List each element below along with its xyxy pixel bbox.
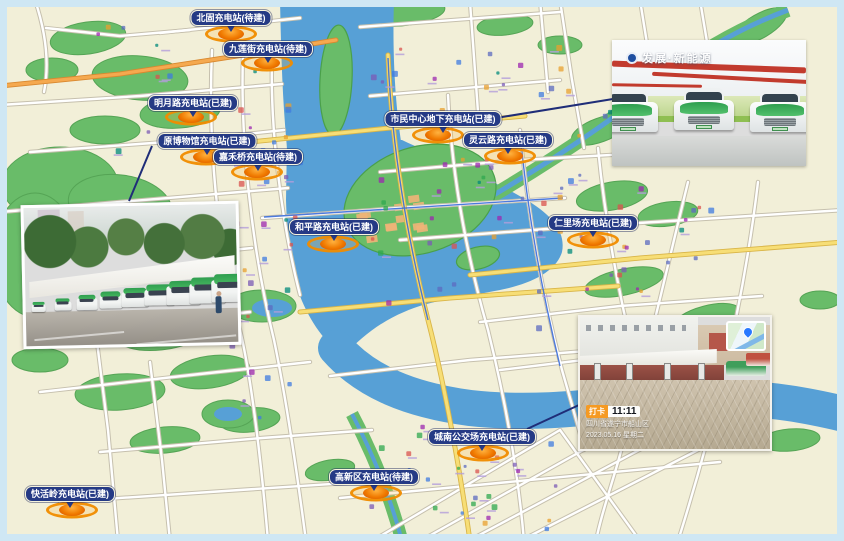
charging-station-marker[interactable] [165,109,217,126]
charging-station-marker[interactable] [567,232,619,249]
taxi-row [24,204,239,346]
photo-depot-charging-lot: 打卡 11:11 四川省遂宁市船山区 2023.05.16 星期二 [578,315,772,451]
station-label[interactable]: 原博物馆充电站(已建) [158,133,257,149]
photo-underground-garage: 发展·新能源 [612,40,806,166]
charging-station-marker[interactable] [457,445,509,462]
frame-border [0,0,844,7]
taxi [674,88,734,134]
charging-pile [594,363,601,380]
taxi [76,298,97,310]
taxi-windshield [34,304,44,307]
station-label[interactable]: 仁里场充电站(已建) [548,215,638,231]
charging-station-marker[interactable] [231,164,283,181]
charging-pile [664,363,671,380]
taxi [612,90,658,136]
taxi-windshield [218,281,242,288]
station-label[interactable]: 高新区充电站(待建) [329,469,419,485]
frame-border [837,0,844,541]
station-label[interactable]: 灵云路充电站(已建) [463,132,553,148]
frame-border [0,0,7,541]
charging-station-marker[interactable] [241,55,293,72]
location-pin-icon [741,325,755,339]
checkin-address: 四川省遂宁市船山区 [586,420,649,429]
charging-station-marker[interactable] [205,26,257,43]
charging-pile [698,363,705,380]
taxi [750,90,806,136]
charging-station-marker[interactable] [307,236,359,253]
photo-canopy-charging-station [21,201,242,350]
red-bus [746,353,772,366]
station-label[interactable]: 九莲街充电站(待建) [223,41,313,57]
building-windows [586,325,686,331]
station-label[interactable]: 明月路充电站(已建) [148,95,238,111]
mini-map-overlay [726,321,766,351]
garage-floor [612,136,806,166]
charging-station-marker[interactable] [350,485,402,502]
station-label[interactable]: 快活岭充电站(已建) [25,486,115,502]
checkin-time: 11:11 [608,406,640,417]
station-label[interactable]: 城南公交场充电站(已建) [428,429,536,445]
station-label[interactable]: 北固充电站(待建) [191,10,272,26]
station-label[interactable]: 和平路充电站(已建) [289,219,379,235]
taxi-windshield [103,296,119,300]
charging-station-marker[interactable] [46,502,98,519]
slogan-text: 发展·新能源 [642,50,713,66]
attendant-person [215,296,221,313]
checkin-badge: 打卡 [586,405,608,418]
charging-station-marker[interactable] [412,127,464,144]
taxi-windshield [80,299,94,303]
taxi-windshield [57,302,69,305]
charging-pile [626,363,633,380]
frame-border [0,534,844,541]
charging-station-marker[interactable] [484,148,536,165]
wall-slogan: 发展·新能源 [626,50,713,66]
taxi [99,295,123,309]
station-label[interactable]: 嘉禾桥充电站(待建) [213,149,303,165]
taxi [54,301,71,311]
checkin-date: 2023.05.16 星期二 [586,431,649,440]
taxi [32,304,46,312]
station-label[interactable]: 市民中心地下充电站(已建) [385,111,502,127]
brand-logo-icon [626,52,638,64]
taxi-windshield [126,293,144,298]
timestamp-overlay: 打卡 11:11 四川省遂宁市船山区 2023.05.16 星期二 [586,405,649,440]
annotated-city-map: 发展·新能源 打卡 [0,0,844,541]
